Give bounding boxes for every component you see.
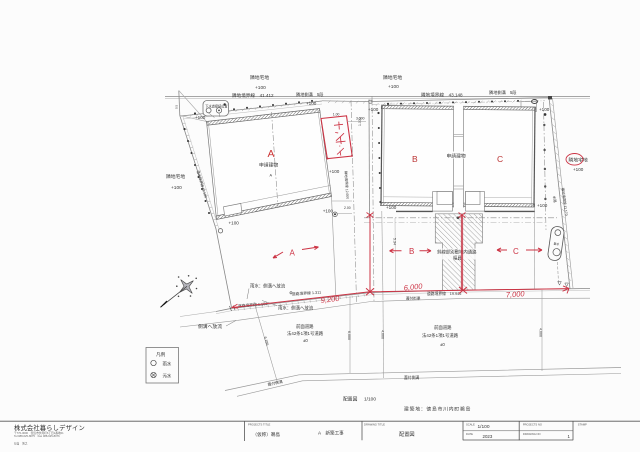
svg-text:Tel 088-625-8075 Fax 088-625-8: Tel 088-625-8075 Fax 088-625-8076 — [14, 434, 60, 438]
svg-text:C: C — [497, 154, 503, 164]
svg-text:A 新築工事: A 新築工事 — [318, 429, 344, 436]
svg-text:PROJECTS NO: PROJECTS NO — [523, 422, 542, 426]
svg-text:雨水: 雨水 — [163, 361, 172, 368]
svg-text:隣地側溝 5段: 隣地側溝 5段 — [296, 91, 324, 98]
svg-text:量水: 量水 — [553, 241, 560, 247]
svg-text:水路: 水路 — [552, 195, 558, 203]
svg-text:+100: +100 — [255, 85, 266, 91]
svg-text:側溝へ放流: 側溝へ放流 — [198, 323, 222, 330]
svg-text:法42条1項1号道路: 法42条1項1号道路 — [287, 330, 324, 337]
svg-text:+100: +100 — [195, 115, 206, 120]
svg-text:B: B — [409, 247, 414, 256]
svg-text:隣地境界線 43.148: 隣地境界線 43.148 — [421, 92, 463, 99]
svg-text:配置図: 配置図 — [399, 431, 415, 438]
svg-text:+100: +100 — [573, 167, 584, 172]
svg-text:C: C — [513, 247, 519, 256]
svg-text:前面道路: 前面道路 — [296, 323, 314, 330]
svg-text:+100: +100 — [329, 169, 340, 174]
svg-text:+100: +100 — [537, 203, 548, 208]
svg-text:B: B — [412, 154, 418, 164]
svg-text:雨水：側溝へ放流: 雨水：側溝へ放流 — [250, 283, 286, 290]
svg-text:申請建物: 申請建物 — [259, 162, 278, 169]
svg-text:PROJECTS TITLE: PROJECTS TITLE — [248, 422, 271, 426]
svg-text:A: A — [290, 249, 296, 258]
svg-text:DRAWING NO: DRAWING NO — [523, 432, 541, 436]
svg-text:申請建物: 申請建物 — [447, 153, 466, 160]
svg-text:2.00: 2.00 — [344, 206, 351, 210]
svg-text:株式会社暮らしデザイン: 株式会社暮らしデザイン — [14, 423, 85, 432]
svg-text:6,000: 6,000 — [347, 331, 351, 340]
svg-text:（仮称）鵜島: （仮称）鵜島 — [253, 431, 281, 438]
svg-text:担当 博之: 担当 博之 — [14, 442, 28, 446]
svg-text:1/100: 1/100 — [478, 424, 490, 430]
svg-text:DATE: DATE — [466, 432, 473, 436]
svg-text:配置図: 配置図 — [343, 397, 358, 403]
svg-text:+100: +100 — [171, 185, 182, 191]
svg-text:隣地宅地: 隣地宅地 — [250, 74, 269, 81]
svg-text:汚水: 汚水 — [163, 373, 172, 380]
svg-text:道路境界線 19.945: 道路境界線 19.945 — [427, 291, 461, 296]
svg-text:1.000: 1.000 — [358, 117, 362, 126]
svg-text:前面道路: 前面道路 — [434, 324, 452, 331]
svg-text:隣地側溝 5段: 隣地側溝 5段 — [489, 89, 517, 96]
svg-text:隣地宅地: 隣地宅地 — [383, 74, 402, 81]
svg-text:1.00: 1.00 — [333, 112, 340, 116]
svg-text:DRAWING TITLE: DRAWING TITLE — [364, 422, 385, 426]
svg-text:葢付側溝: 葢付側溝 — [404, 375, 419, 380]
svg-text:法42条1項1号道路: 法42条1項1号道路 — [422, 332, 459, 339]
svg-text:隣地宅地: 隣地宅地 — [166, 173, 185, 180]
svg-text:2023: 2023 — [483, 434, 493, 439]
svg-text:+100: +100 — [229, 221, 240, 226]
svg-text:建築地：徳島市川内町鵜島: 建築地：徳島市川内町鵜島 — [404, 406, 471, 413]
svg-text:+100: +100 — [306, 101, 317, 106]
svg-text:SCALE: SCALE — [466, 423, 475, 427]
svg-text:0.5: 0.5 — [175, 104, 179, 109]
svg-text:7,000: 7,000 — [506, 289, 526, 299]
svg-text:4,000: 4,000 — [381, 330, 385, 339]
svg-text:±0: ±0 — [303, 338, 308, 343]
svg-text:+100: +100 — [368, 107, 379, 112]
svg-text:凡例: 凡例 — [156, 351, 166, 358]
svg-text:雨水：側溝へ放流: 雨水：側溝へ放流 — [278, 305, 314, 312]
svg-text:葢付街渠: 葢付街渠 — [406, 296, 421, 301]
svg-text:STAMP: STAMP — [578, 422, 587, 426]
svg-text:1/100: 1/100 — [364, 397, 376, 403]
svg-text:A: A — [268, 148, 275, 160]
svg-text:5.34: 5.34 — [393, 238, 397, 245]
svg-text:4,000: 4,000 — [539, 328, 543, 337]
svg-text:斜線部別敷地内通路: 斜線部別敷地内通路 — [437, 249, 477, 256]
svg-text:隣地宅地: 隣地宅地 — [569, 157, 588, 164]
svg-text:+100: +100 — [388, 84, 399, 90]
svg-text:±0: ±0 — [440, 342, 445, 347]
svg-text:隣地境界線 41.412: 隣地境界線 41.412 — [232, 92, 274, 99]
svg-text:+100: +100 — [539, 107, 550, 112]
